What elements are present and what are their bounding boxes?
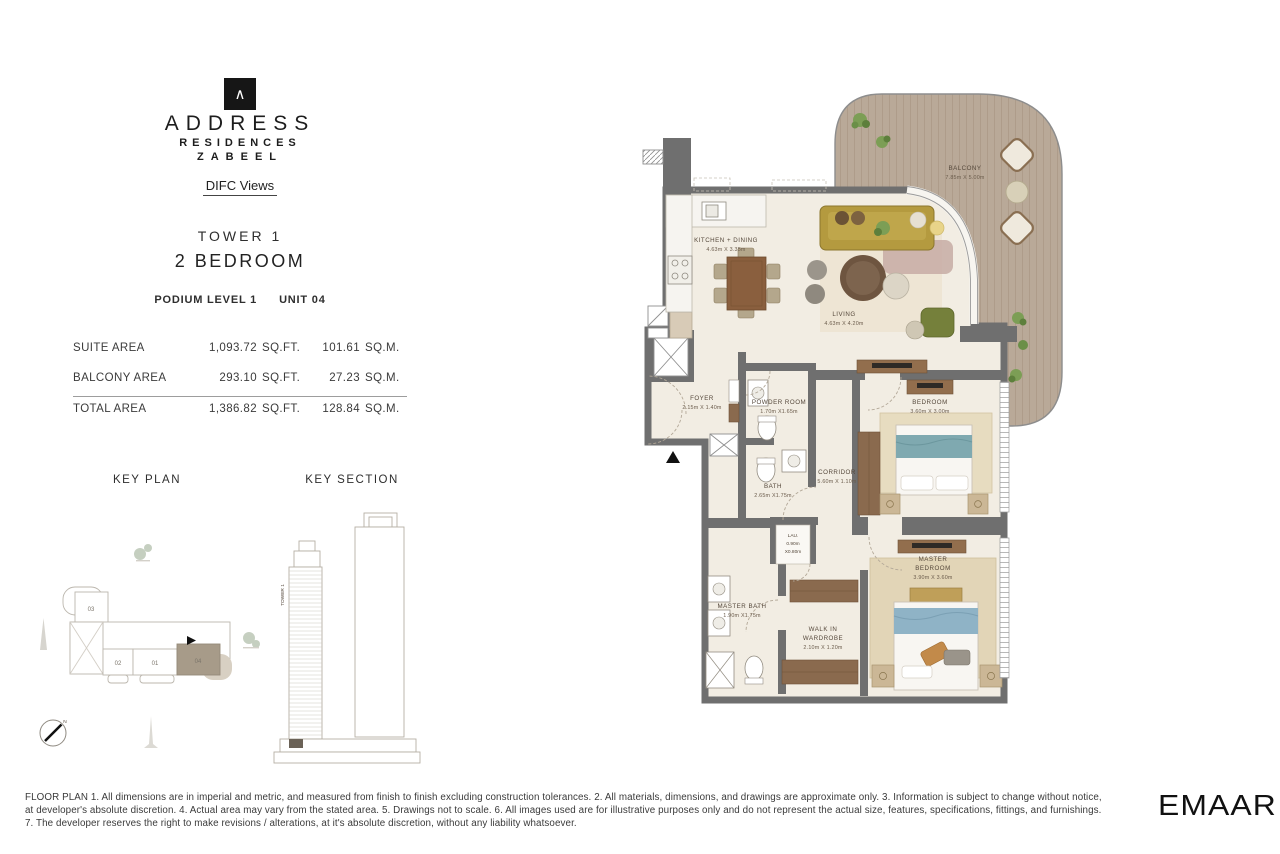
room-label-living: LIVING [832, 311, 855, 318]
keyplan-tree2-icon [243, 632, 260, 648]
area-sqft-unit: SQ.FT. [257, 372, 310, 384]
coffee-table-icon [883, 273, 909, 299]
table-row: TOTAL AREA 1,386.82 SQ.FT. 128.84 SQ.M. [73, 403, 407, 415]
table-row: SUITE AREA 1,093.72 SQ.FT. 101.61 SQ.M. [73, 342, 407, 354]
room-label-balcony: BALCONY [948, 165, 981, 172]
room-dims-kitchen: 4.63m X 3.35m [706, 247, 745, 253]
room-dims-master: 3.90m X 3.60m [913, 575, 952, 581]
room-label-corridor: CORRIDOR [818, 469, 856, 476]
area-sqft: 293.10 [193, 372, 257, 384]
area-sqm-unit: SQ.M. [360, 342, 400, 354]
room-dims-wardrobe: 2.10m X 1.20m [803, 645, 842, 651]
table-divider [73, 396, 407, 397]
section-tower1-crown [294, 551, 320, 567]
bed-icon [896, 425, 972, 495]
podium-level: PODIUM LEVEL 1 [154, 294, 257, 306]
area-sqm: 27.23 [310, 372, 360, 384]
room-dims-laundry2: X0.80m [785, 549, 802, 555]
keyplan-balcony-bump [140, 675, 174, 683]
disclaimer-line: at developer's absolute discretion. 4. A… [25, 805, 1101, 816]
room-label-laundry: LAU. [788, 533, 799, 539]
area-sqft-unit: SQ.FT. [257, 342, 310, 354]
area-sqm-unit: SQ.M. [360, 372, 400, 384]
nightstand-icon [980, 665, 1002, 687]
master-toilet-icon [745, 656, 763, 680]
disclaimer-line: FLOOR PLAN 1. All dimensions are in impe… [25, 792, 1102, 803]
room-label-powder: POWDER ROOM [752, 399, 806, 406]
brochure-page: ∧ ADDRESS RESIDENCES ZABEEL DIFC Views T… [0, 0, 1280, 854]
area-sqft: 1,386.82 [193, 403, 257, 415]
armchair-icon [921, 308, 954, 337]
project-name-text: DIFC Views [203, 178, 277, 196]
floor-lamp-icon [930, 221, 944, 235]
section-tower2-cap-inner [369, 517, 392, 527]
room-label-bath: BATH [764, 483, 782, 490]
room-label-masterbath: MASTER BATH [717, 603, 766, 610]
room-dims-foyer: 2.15m X 1.40m [682, 405, 721, 411]
room-label-foyer: FOYER [690, 395, 714, 402]
project-name: DIFC Views [90, 178, 390, 193]
unit-number: UNIT 04 [279, 294, 326, 306]
floor-plan-drawing: KITCHEN + DINING 4.63m X 3.35m LIVING 4.… [630, 80, 1070, 725]
keyplan-tree-icon [134, 544, 152, 561]
developer-logo: EMAAR [1158, 790, 1277, 823]
brand-name: ADDRESS [90, 112, 390, 136]
room-dims-corridor: 5.60m X 1.10m [817, 479, 856, 485]
keyplan-unit02-label: 02 [115, 661, 122, 667]
keyplan-unit04-label: 04 [195, 659, 202, 665]
brand-sub2: ZABEEL [90, 151, 390, 163]
keyplan-landmark2-icon [144, 716, 158, 748]
room-label-master2: BEDROOM [915, 565, 950, 572]
unit-type-title: 2 BEDROOM [90, 251, 390, 272]
area-sqft: 1,093.72 [193, 342, 257, 354]
fridge [670, 312, 692, 338]
room-dims-balcony: 7.85m X 5.00m [945, 175, 984, 181]
room-dims-bath: 2.65m X1.75m [754, 493, 792, 499]
compass-icon: N [40, 719, 67, 746]
level-unit-row: PODIUM LEVEL 1UNIT 04 [90, 294, 390, 306]
keyplan-landmark-icon [40, 618, 47, 650]
room-label-bedroom: BEDROOM [912, 399, 947, 406]
key-section-title: KEY SECTION [292, 474, 412, 486]
area-sqm: 128.84 [310, 403, 360, 415]
master-bed-icon [894, 588, 978, 690]
area-label: TOTAL AREA [73, 403, 193, 415]
pouf-icon [805, 284, 825, 304]
room-dims-bedroom: 3.60m X 3.00m [910, 409, 949, 415]
section-tower1-antenna [299, 541, 315, 551]
area-sqm: 101.61 [310, 342, 360, 354]
keyplan-unit01-label: 01 [152, 661, 159, 667]
area-sqm-unit: SQ.M. [360, 403, 400, 415]
balcony-table-icon [1006, 181, 1028, 203]
section-tower1 [289, 567, 322, 739]
section-tower1-label: TOWER 1 [280, 584, 286, 606]
pouf-icon [807, 260, 827, 280]
tower-title: TOWER 1 [90, 228, 390, 244]
section-tower2 [355, 527, 404, 737]
nightstand-icon [968, 494, 988, 514]
side-table-icon [906, 321, 924, 339]
brand-logo-icon: ∧ [224, 78, 256, 110]
room-label-wardrobe2: WARDROBE [803, 635, 843, 642]
nightstand-icon [880, 494, 900, 514]
room-label-wardrobe: WALK IN [809, 626, 838, 633]
area-label: SUITE AREA [73, 342, 193, 354]
room-dims-laundry: 0.90m [786, 541, 799, 547]
room-dims-masterbath: 1.90m X1.75m [723, 613, 761, 619]
room-label-master: MASTER [919, 556, 948, 563]
section-highlight-level [289, 739, 303, 748]
disclaimer-line: 7. The developer reserves the right to m… [25, 818, 577, 829]
room-dims-living: 4.63m X 4.20m [824, 321, 863, 327]
section-base [274, 752, 420, 763]
table-row: BALCONY AREA 293.10 SQ.FT. 27.23 SQ.M. [73, 372, 407, 384]
foyer-cabinet [729, 380, 739, 402]
key-plan-drawing: 03 02 01 04 N [30, 492, 270, 767]
area-label: BALCONY AREA [73, 372, 193, 384]
nightstand-icon [872, 665, 894, 687]
foyer-cabinet [729, 404, 739, 422]
room-dims-powder: 1.70m X1.65m [760, 409, 798, 415]
keyplan-unit03-label: 03 [88, 607, 95, 613]
compass-north-label: N [63, 719, 67, 725]
entrance-arrow-icon [666, 451, 680, 463]
key-section-drawing: TOWER 1 [272, 495, 447, 770]
keyplan-balcony-bump [108, 675, 128, 683]
area-sqft-unit: SQ.FT. [257, 403, 310, 415]
brand-sub1: RESIDENCES [90, 137, 390, 149]
stove-icon [668, 256, 692, 284]
key-plan-title: KEY PLAN [87, 474, 207, 486]
room-label-kitchen: KITCHEN + DINING [694, 237, 758, 244]
